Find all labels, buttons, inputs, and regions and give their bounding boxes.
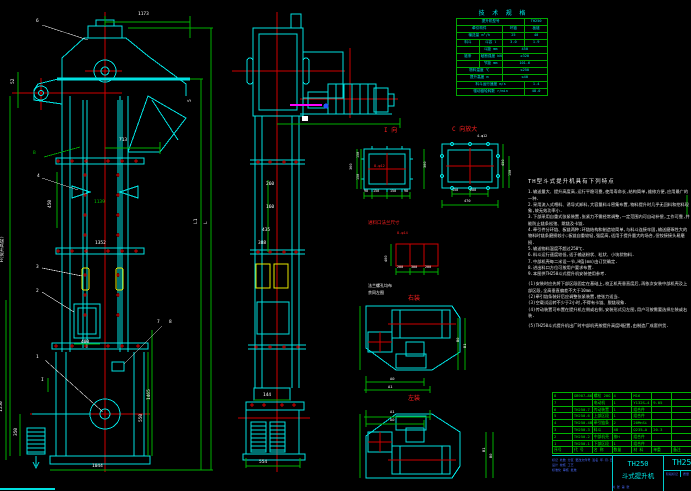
table-cell [652,413,672,420]
parts-table: 8GB907—86螺栓 20G4M167电动机1Y132S—49.056TH25… [552,392,691,454]
table-cell: ≥320 [502,54,548,61]
table-cell [672,393,691,400]
table-row: 2TH250.2中部机壳按H组合件 [553,433,691,440]
table-cell: GB907—86 [572,393,592,400]
table-cell: 组合件 [632,440,652,447]
dim-label: 260 [266,183,274,188]
dim-label: 150 [373,190,379,193]
dim-label: I 向 [384,128,397,134]
table-row: 8GB907—86螺栓 20G4M16 [553,393,691,400]
dim-label: 150 [452,189,458,192]
table-cell: 3 [553,426,573,433]
notes-heading: TH型斗式提升机具有下列特点 [528,178,690,186]
dim-label: 1465 [148,389,153,400]
dim-label: L1 [195,219,200,224]
mass-label: 质量 [681,471,691,477]
table-cell: 传动装置 [592,406,612,413]
dim-label: 400 [385,256,389,263]
table-row: 斗距 mm450 [457,47,548,54]
table-cell: 40 [525,33,548,40]
dim-label: 150 [390,190,396,193]
table-row: 料斗运行速度 m/s1.4 [457,82,548,89]
table-cell: TH250.1 [572,440,592,447]
table-cell: 4 [612,393,632,400]
table-cell [652,393,672,400]
dim-label: 7 [157,321,160,326]
dim-label: B0 [456,337,460,342]
stage-label: 阶段标记 [664,471,681,477]
table-cell: 8 [553,393,573,400]
dim-label: B1 [463,343,467,348]
title-block: 标记 处数 分区 更改文件号 签名 年.月.日 设计 校核 工艺 标准化 审核 … [552,455,691,491]
table-cell [652,420,672,427]
dim-label: 150 [357,174,360,180]
sign-line-2: 标准化 审核 批准 [552,468,612,473]
dim-label: 200 [470,189,476,192]
dim-label: 300 [424,162,428,169]
dim-label: 144 [263,394,271,399]
note-line: 3.下部采用自重式张紧装置,张紧力不需经常调整,一定范围内可自动补偿,工作可靠,… [528,214,690,227]
table-cell: 牵引构件 [457,26,503,33]
dim-label: 8 [169,321,172,326]
dim-label: 400 [81,341,89,346]
head-side [247,14,394,116]
notes-lines: 1.输送量大、提升高度高,运行平稳可靠,使用寿命长,结构简单,维修方便,应用最广… [528,189,690,329]
table-cell [652,433,672,440]
table-cell: 101.6 [502,61,548,68]
bucket-side [274,264,288,288]
dim-label: 450 [502,160,506,167]
table-cell: ≤250 [502,68,548,75]
dim-label: 470 [464,200,471,204]
table-row: 提升高度 m≤40 [457,75,548,82]
dim-label: 左装 [408,396,420,402]
boot-side [243,388,305,460]
table-cell [672,413,691,420]
dim-label: 2 [36,290,39,295]
dim-label: B1 [482,447,486,452]
table-cell: TH250 [525,19,548,26]
table-cell [457,61,480,68]
note-line: 2.采用流入式喂料、诱导式卸料,大容量料斗密集布置,物料提升时几乎无回料和挖料现… [528,202,690,215]
dim-label: 余同左图 [368,291,384,295]
table-cell: 7 [553,399,573,406]
dim-label: 1550 [0,401,5,412]
table-cell: 450 [502,47,548,54]
chain-strands [83,100,122,348]
table-cell: TH250.7 [572,406,592,413]
revision-area: 标记 处数 分区 更改文件号 签名 年.月.日 设计 校核 工艺 标准化 审核 … [552,456,613,491]
dim-label: A1 [390,410,395,414]
table-cell: 数量 [612,447,632,454]
dim-label: 4 [37,175,40,180]
dim-label: 1 [36,356,39,361]
table-cell: 9.05 [652,399,672,406]
table-cell: 5 [553,413,573,420]
dim-label: 5 [189,99,194,102]
table-row: 序号代 号名 称数量材 料单重备注 [553,447,691,454]
cad-drawing-sheet: 61173552B71344501139135232H(提升高度)L1L4007… [0,0,691,491]
table-cell: 组合件 [632,413,652,420]
table-cell: 按H [612,433,632,440]
drawing-number-box: TH250 阶段标记 质量 比例 1:25 [664,456,691,491]
dim-label: 右装 [408,296,420,302]
spec-table: 提升机型号TH250牵引构件环链板链输送量 m³/h2540料斗斗容 l3.01… [456,18,548,96]
dim-label: 435 [262,229,270,234]
table-cell: Y132S—4 [632,399,652,406]
dim-label: 150 [509,170,512,176]
table-row: 驱动链轮转数 r/min48.0 [457,89,548,96]
table-cell [672,433,691,440]
table-cell: ≤40 [502,75,548,82]
table-cell: TH250.3 [572,426,592,433]
table-cell: 料斗 [457,40,480,47]
dim-label: 1044 [92,465,103,470]
table-cell: 组合件 [632,406,652,413]
table-cell: 20.3 [652,426,672,433]
table-cell: 输送量 m³/h [457,33,503,40]
table-cell: 物料温度 ℃ [457,68,503,75]
dim-label: 450 [49,200,54,208]
dim-label: 360 [350,164,354,171]
table-row: 节距 mm101.6 [457,61,548,68]
table-cell: 料斗运行速度 m/s [457,82,525,89]
dim-label: 554 [259,461,267,466]
flange-detail-c [441,143,510,209]
dim-label: A1 [388,385,393,389]
table-cell: 2 [612,420,632,427]
feature-notes: TH型斗式提升机具有下列特点 1.输送量大、提升高度高,运行平稳可靠,使用寿命长… [528,178,690,329]
table-cell [672,420,691,427]
table-row: 输送量 m³/h2540 [457,33,548,40]
table-cell [652,406,672,413]
table-cell [672,399,691,406]
table-cell: TH250.2 [572,433,592,440]
table-row: 物料温度 ℃≤250 [457,68,548,75]
dim-label: 1352 [95,242,106,247]
table-cell: 1 [612,413,632,420]
table-cell: 提升高度 m [457,75,503,82]
dim-label: 200 [425,266,431,269]
table-cell [672,426,691,433]
table-cell: 破断强度 kN [479,54,502,61]
table-cell: 单重 [652,447,672,454]
table-cell [672,440,691,447]
table-cell: 3.0 [502,40,525,47]
table-cell: 驱动链轮转数 r/min [457,89,525,96]
table-cell: 48.0 [525,89,548,96]
table-cell: 4 [553,420,573,427]
sheet-count: 共 张 第 张 [612,485,629,489]
dim-label: H(提升高度) [1,236,6,262]
dim-label: 350 [15,428,20,436]
dim-label: 550 [140,414,145,422]
inlet-flange-detail [391,244,438,275]
note-line: (4)传动装置可布置在提升机左侧或右侧,安装形式见左图,用户可按需要选择左装或右… [528,307,690,320]
dim-label: 8-φ12 [374,165,385,169]
table-cell: 名 称 [592,447,612,454]
table-cell [572,399,592,406]
dim-label: A0 [390,377,395,381]
table-row: 牵引构件环链板链 [457,26,548,33]
table-cell: 代 号 [572,447,592,454]
table-cell [457,47,480,54]
table-cell: 序号 [553,447,573,454]
table-cell: 斗距 mm [479,47,502,54]
table-cell [652,440,672,447]
dim-label: 200 [397,266,403,269]
technical-spec-table: 技 术 规 格 提升机型号TH250牵引构件环链板链输送量 m³/h2540料斗… [456,8,550,96]
head-section [34,20,190,152]
discharge-chute [128,96,186,152]
table-row: 1TH250.1下部区段1组合件 [553,440,691,447]
table-cell: TH250.6 [572,413,592,420]
table-cell: 节距 mm [479,61,502,68]
dim-label: 160 [266,206,274,211]
table-cell: 20MnSi [632,420,652,427]
dim-label: 90 [404,190,408,193]
table-cell: TH250.4B [572,420,592,427]
table-cell: 中部机壳 [592,433,612,440]
dim-label: B [33,152,36,157]
table-cell: 1 [553,440,573,447]
table-cell: M16 [632,393,652,400]
dim-text-block [302,116,308,121]
table-cell: 环链 [502,26,525,33]
dim-label: C 向放大 [452,127,477,133]
table-cell: 1 [612,440,632,447]
dim-label: 3 [36,266,39,271]
model-number: TH250 [613,460,663,468]
table-row: 6TH250.7传动装置1组合件 [553,406,691,413]
dim-label: I [41,379,44,384]
note-line: 1.输送量大、提升高度高,运行平稳可靠,使用寿命长,结构简单,维修方便,应用最广… [528,189,690,202]
table-cell: 螺栓 20G [592,393,612,400]
take-up-screw [251,422,266,452]
table-cell: 牵引链条 [592,420,612,427]
dim-label: 8-φ14 [397,232,408,236]
plan-view-left-install [360,410,493,478]
dim-label: 388 [258,242,266,247]
table-cell: 6 [553,406,573,413]
table-cell: Q235—A [632,426,652,433]
table-cell: 25 [502,33,525,40]
table-cell: 提升机型号 [457,19,525,26]
table-row: 5TH250.6上部区段1组合件 [553,413,691,420]
table-row: 提升机型号TH250 [457,19,548,26]
table-cell: 材 料 [632,447,652,454]
bucket-side [256,264,270,288]
dim-label: 1139 [94,201,105,206]
table-cell [672,406,691,413]
table-cell: 48 [612,426,632,433]
dim-label: 90 [364,190,368,193]
table-cell: 2 [553,433,573,440]
table-cell: 斗容 l [479,40,502,47]
dim-label: 6 [36,20,39,25]
dim-label: 300 [411,266,417,269]
spec-table-title: 技 术 规 格 [456,8,550,17]
dim-label: 进料口法兰尺寸 [368,222,400,227]
table-cell: 链条 [457,54,480,61]
drawing-number: TH250 [664,456,691,471]
bolt-marks-side [250,160,300,407]
centerlines [12,12,150,472]
table-cell: 板链 [525,26,548,33]
dim-label: 52 [12,79,17,84]
table-cell: 1 [612,399,632,406]
parts-list: 8GB907—86螺栓 20G4M167电动机1Y132S—49.056TH25… [552,392,691,454]
blue-marker [324,104,329,109]
table-cell: 1 [612,406,632,413]
table-cell: 1.9 [525,40,548,47]
note-line: (5)TH250斗式提升机出厂时中部机壳按提升高度H配置,由制造厂成套供货. [528,323,690,329]
dim-label: 4-φ12 [477,135,487,138]
table-row: 链条破断强度 kN≥320 [457,54,548,61]
callout-78-part [112,362,124,371]
buckets [82,268,123,290]
dim-label: 713 [119,139,127,144]
table-cell: 料斗 [592,426,612,433]
boot-section [27,352,150,468]
table-row: 7电动机1Y132S—49.05 [553,399,691,406]
note-line: (1)安装时应先将下部区段固定在基础上,校正机壳垂直度后,再依次安装中部机壳及上… [528,281,690,294]
table-cell: 备注 [672,447,691,454]
dim-label: B0 [489,453,493,458]
dim-label: 150 [357,152,360,158]
table-cell: 上部区段 [592,413,612,420]
table-cell: 1.4 [525,82,548,89]
dim-label: 法兰螺孔均布 [368,284,392,288]
table-row: 3TH250.3料斗48Q235—A20.3 [553,426,691,433]
note-line: 4.牵引件分环链、板链两种:环链结构和制造较简单,与料斗连接牢固,输送磨琢性大的… [528,227,690,246]
drawing-name: 斗式提升机 [613,470,663,480]
table-cell: 组合件 [632,433,652,440]
dim-label: 1173 [138,13,149,18]
dim-label: L [205,221,210,224]
plan-view-right-install [360,306,465,393]
table-row: 料斗斗容 l3.01.9 [457,40,548,47]
table-row: 4TH250.4B牵引链条220MnSi [553,420,691,427]
table-cell: 电动机 [592,399,612,406]
dim-label: A0 [390,418,395,422]
table-cell: 下部区段 [592,440,612,447]
